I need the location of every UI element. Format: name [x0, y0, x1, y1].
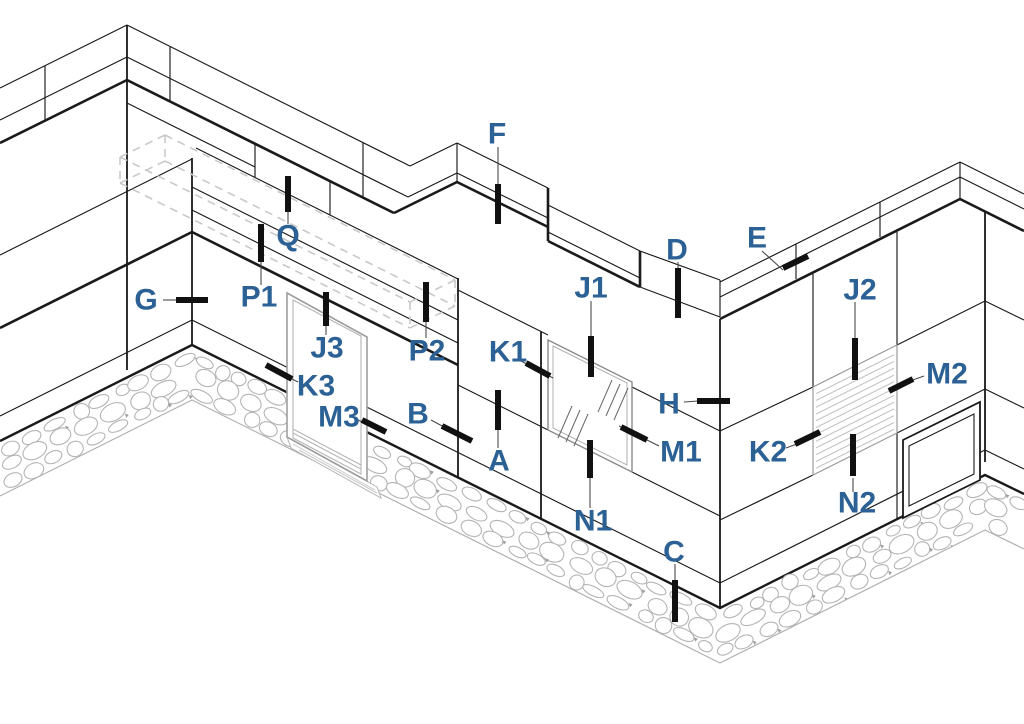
blank-panel — [903, 402, 980, 518]
stone-chip — [125, 413, 129, 418]
callout-label: M2 — [926, 358, 968, 391]
stone — [189, 386, 215, 406]
blank-panel-frame — [903, 402, 980, 518]
callout-label: N2 — [838, 487, 876, 520]
diagram-canvas: GP1QJ3K3M3P2BAK1J1M1N1CFDEHJ2K2M2N2 — [0, 0, 1024, 724]
callout-label: J1 — [574, 272, 607, 305]
stone — [912, 539, 932, 559]
callout-D: D — [666, 234, 688, 319]
stone-chip — [880, 544, 884, 549]
stone — [892, 555, 913, 572]
wall-linework — [0, 25, 1024, 608]
callout-M2: M2 — [889, 358, 968, 392]
callout-E: E — [747, 222, 808, 271]
stone — [545, 562, 566, 579]
callout-A: A — [488, 390, 510, 478]
callout-label: J2 — [843, 274, 876, 307]
stone — [715, 641, 735, 658]
stone — [2, 470, 25, 490]
callout-label: E — [747, 222, 767, 255]
callout-label: M3 — [318, 401, 360, 434]
callout-label: K3 — [297, 370, 335, 403]
callout-label: J3 — [310, 332, 343, 365]
stone — [485, 496, 508, 515]
joint-tick — [526, 363, 550, 376]
stone — [986, 516, 1010, 538]
callout-G: G — [134, 284, 208, 317]
stone — [645, 580, 668, 598]
stone — [195, 355, 215, 371]
joint-tick — [442, 426, 472, 441]
callout-M3: M3 — [318, 401, 386, 434]
callout-P2: P2 — [409, 282, 446, 368]
callout-label: K1 — [489, 336, 527, 369]
stone — [1008, 494, 1024, 512]
stone — [981, 495, 1009, 520]
corner-edges — [127, 25, 985, 608]
callout-label: P2 — [409, 335, 446, 368]
stone — [64, 438, 85, 459]
callout-label: F — [488, 118, 506, 151]
callout-label: C — [663, 536, 685, 569]
callout-label: P1 — [241, 281, 278, 314]
isometric-wall-diagram: GP1QJ3K3M3P2BAK1J1M1N1CFDEHJ2K2M2N2 — [0, 0, 1024, 724]
callout-label: A — [488, 445, 510, 478]
thick-edges — [0, 80, 1024, 365]
callout-label: N1 — [574, 505, 612, 538]
stone — [697, 638, 714, 654]
callout-Q: Q — [276, 176, 299, 253]
stone — [567, 554, 595, 578]
stone — [0, 452, 23, 472]
stone-chip — [888, 571, 892, 576]
callout-label: B — [407, 398, 429, 431]
callout-label: G — [134, 284, 157, 317]
stone-chip — [694, 637, 698, 642]
stone — [758, 619, 781, 639]
callout-label: M1 — [660, 436, 702, 469]
callout-K2: K2 — [749, 432, 820, 469]
stone — [668, 589, 694, 608]
stone — [193, 366, 219, 390]
callout-label: K2 — [749, 436, 787, 469]
callout-label: Q — [276, 220, 299, 253]
callout-K1: K1 — [489, 336, 553, 379]
leader-line — [684, 401, 698, 402]
callout-label: D — [666, 234, 688, 267]
callout-label: H — [658, 388, 680, 421]
callout-B: B — [407, 398, 472, 442]
callout-F: F — [488, 118, 506, 225]
